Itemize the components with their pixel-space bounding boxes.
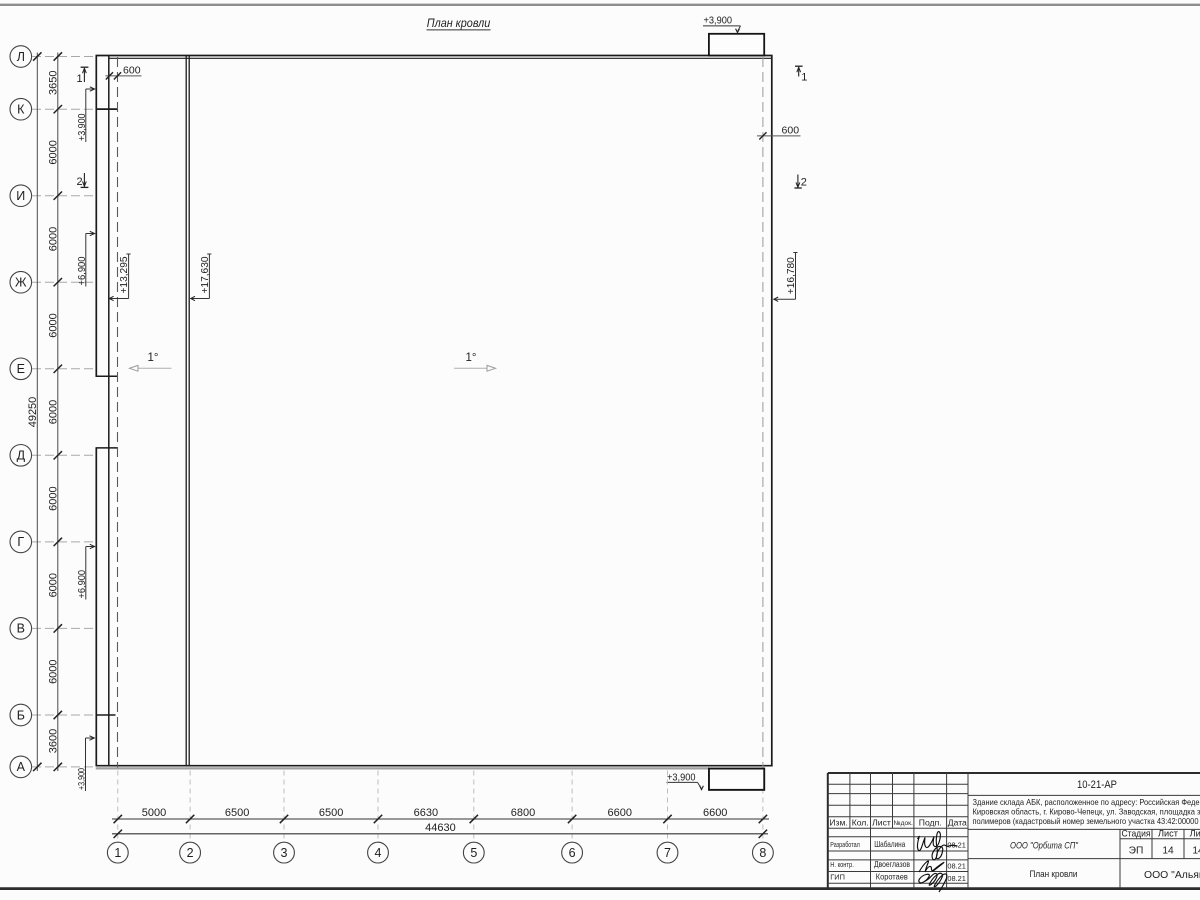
svg-text:Д: Д: [17, 449, 26, 463]
svg-text:6600: 6600: [608, 807, 632, 819]
svg-text:6000: 6000: [48, 659, 60, 683]
svg-text:5000: 5000: [142, 807, 166, 819]
svg-text:+3,900: +3,900: [704, 15, 733, 26]
svg-text:Лист: Лист: [872, 817, 891, 827]
svg-text:1: 1: [76, 73, 82, 85]
svg-text:5: 5: [470, 846, 477, 860]
svg-text:1°: 1°: [466, 352, 477, 364]
svg-text:44630: 44630: [425, 822, 456, 834]
svg-text:+13,295: +13,295: [119, 256, 130, 293]
svg-text:Шабалина: Шабалина: [874, 840, 905, 849]
svg-text:6000: 6000: [48, 227, 60, 251]
svg-text:08.21: 08.21: [947, 874, 966, 883]
svg-text:1°: 1°: [148, 352, 159, 364]
svg-text:Изм.: Изм.: [829, 817, 847, 827]
svg-text:ООО "Орбита СП": ООО "Орбита СП": [1010, 840, 1078, 851]
svg-text:В: В: [17, 622, 25, 636]
svg-text:План кровли: План кровли: [1030, 868, 1078, 879]
svg-text:Е: Е: [17, 362, 25, 376]
svg-text:4: 4: [375, 846, 382, 860]
svg-text:3: 3: [281, 846, 288, 860]
svg-text:Стадия: Стадия: [1122, 828, 1151, 838]
svg-text:600: 600: [782, 125, 800, 137]
svg-text:6000: 6000: [48, 140, 60, 164]
svg-text:Кировская область, г. Кирово-Ч: Кировская область, г. Кирово-Чепецк, ул.…: [973, 807, 1200, 816]
svg-text:Подп.: Подп.: [919, 817, 942, 827]
svg-text:6500: 6500: [319, 807, 343, 819]
svg-text:Л: Л: [17, 50, 25, 64]
svg-text:1: 1: [114, 846, 121, 860]
svg-text:6630: 6630: [414, 807, 438, 819]
svg-text:2: 2: [801, 176, 807, 188]
svg-text:6000: 6000: [48, 400, 60, 424]
svg-text:Н. контр.: Н. контр.: [830, 860, 854, 869]
svg-text:+6,900: +6,900: [77, 570, 88, 599]
svg-text:+16,780: +16,780: [786, 257, 797, 294]
svg-text:ЭП: ЭП: [1129, 845, 1144, 856]
svg-text:08.21: 08.21: [947, 862, 966, 871]
svg-text:7: 7: [664, 846, 671, 860]
svg-text:+6,900: +6,900: [77, 256, 88, 285]
svg-text:6500: 6500: [225, 807, 249, 819]
svg-text:6600: 6600: [703, 807, 727, 819]
svg-text:План кровли: План кровли: [427, 16, 491, 30]
svg-text:600: 600: [123, 65, 141, 77]
svg-text:3600: 3600: [48, 729, 60, 753]
svg-text:полимеров (кадастровый номер з: полимеров (кадастровый номер земельного …: [973, 817, 1199, 826]
svg-text:2: 2: [76, 176, 82, 188]
svg-text:+3,900: +3,900: [77, 113, 88, 141]
svg-text:14: 14: [1192, 845, 1200, 856]
svg-text:6000: 6000: [48, 486, 60, 510]
svg-text:+3,900: +3,900: [667, 772, 696, 783]
svg-text:№док.: №док.: [894, 820, 913, 827]
svg-text:Б: Б: [17, 708, 25, 722]
svg-text:Лис: Лис: [1190, 828, 1200, 838]
svg-text:Коротаев: Коротаев: [876, 873, 908, 882]
svg-text:14: 14: [1162, 845, 1174, 856]
svg-text:К: К: [17, 103, 25, 117]
svg-text:+17,630: +17,630: [200, 256, 211, 293]
svg-text:Разработал: Разработал: [830, 840, 860, 849]
svg-text:49250: 49250: [27, 397, 39, 428]
svg-text:10-21-АР: 10-21-АР: [1077, 779, 1117, 791]
svg-text:6000: 6000: [48, 573, 60, 597]
svg-text:Здание склада АБК, расположенн: Здание склада АБК, расположенное по адре…: [973, 798, 1200, 807]
svg-text:6: 6: [569, 846, 576, 860]
svg-text:6800: 6800: [511, 807, 535, 819]
svg-text:ООО "Альянс: ООО "Альянс: [1144, 870, 1200, 881]
svg-text:6000: 6000: [48, 313, 60, 337]
svg-text:Лист: Лист: [1158, 828, 1179, 838]
svg-text:ГИП: ГИП: [830, 873, 845, 882]
svg-text:Двоеглазов: Двоеглазов: [874, 860, 910, 869]
svg-text:Дата: Дата: [948, 817, 967, 827]
svg-text:1: 1: [801, 72, 807, 84]
svg-text:Ж: Ж: [15, 276, 27, 290]
svg-text:3650: 3650: [48, 71, 60, 95]
svg-text:Кол.: Кол.: [852, 817, 869, 827]
svg-text:И: И: [16, 189, 25, 203]
svg-text:2: 2: [187, 846, 194, 860]
svg-text:А: А: [17, 760, 26, 774]
svg-text:8: 8: [759, 846, 766, 860]
svg-text:Г: Г: [17, 535, 24, 549]
svg-text:+3,900: +3,900: [77, 768, 87, 790]
